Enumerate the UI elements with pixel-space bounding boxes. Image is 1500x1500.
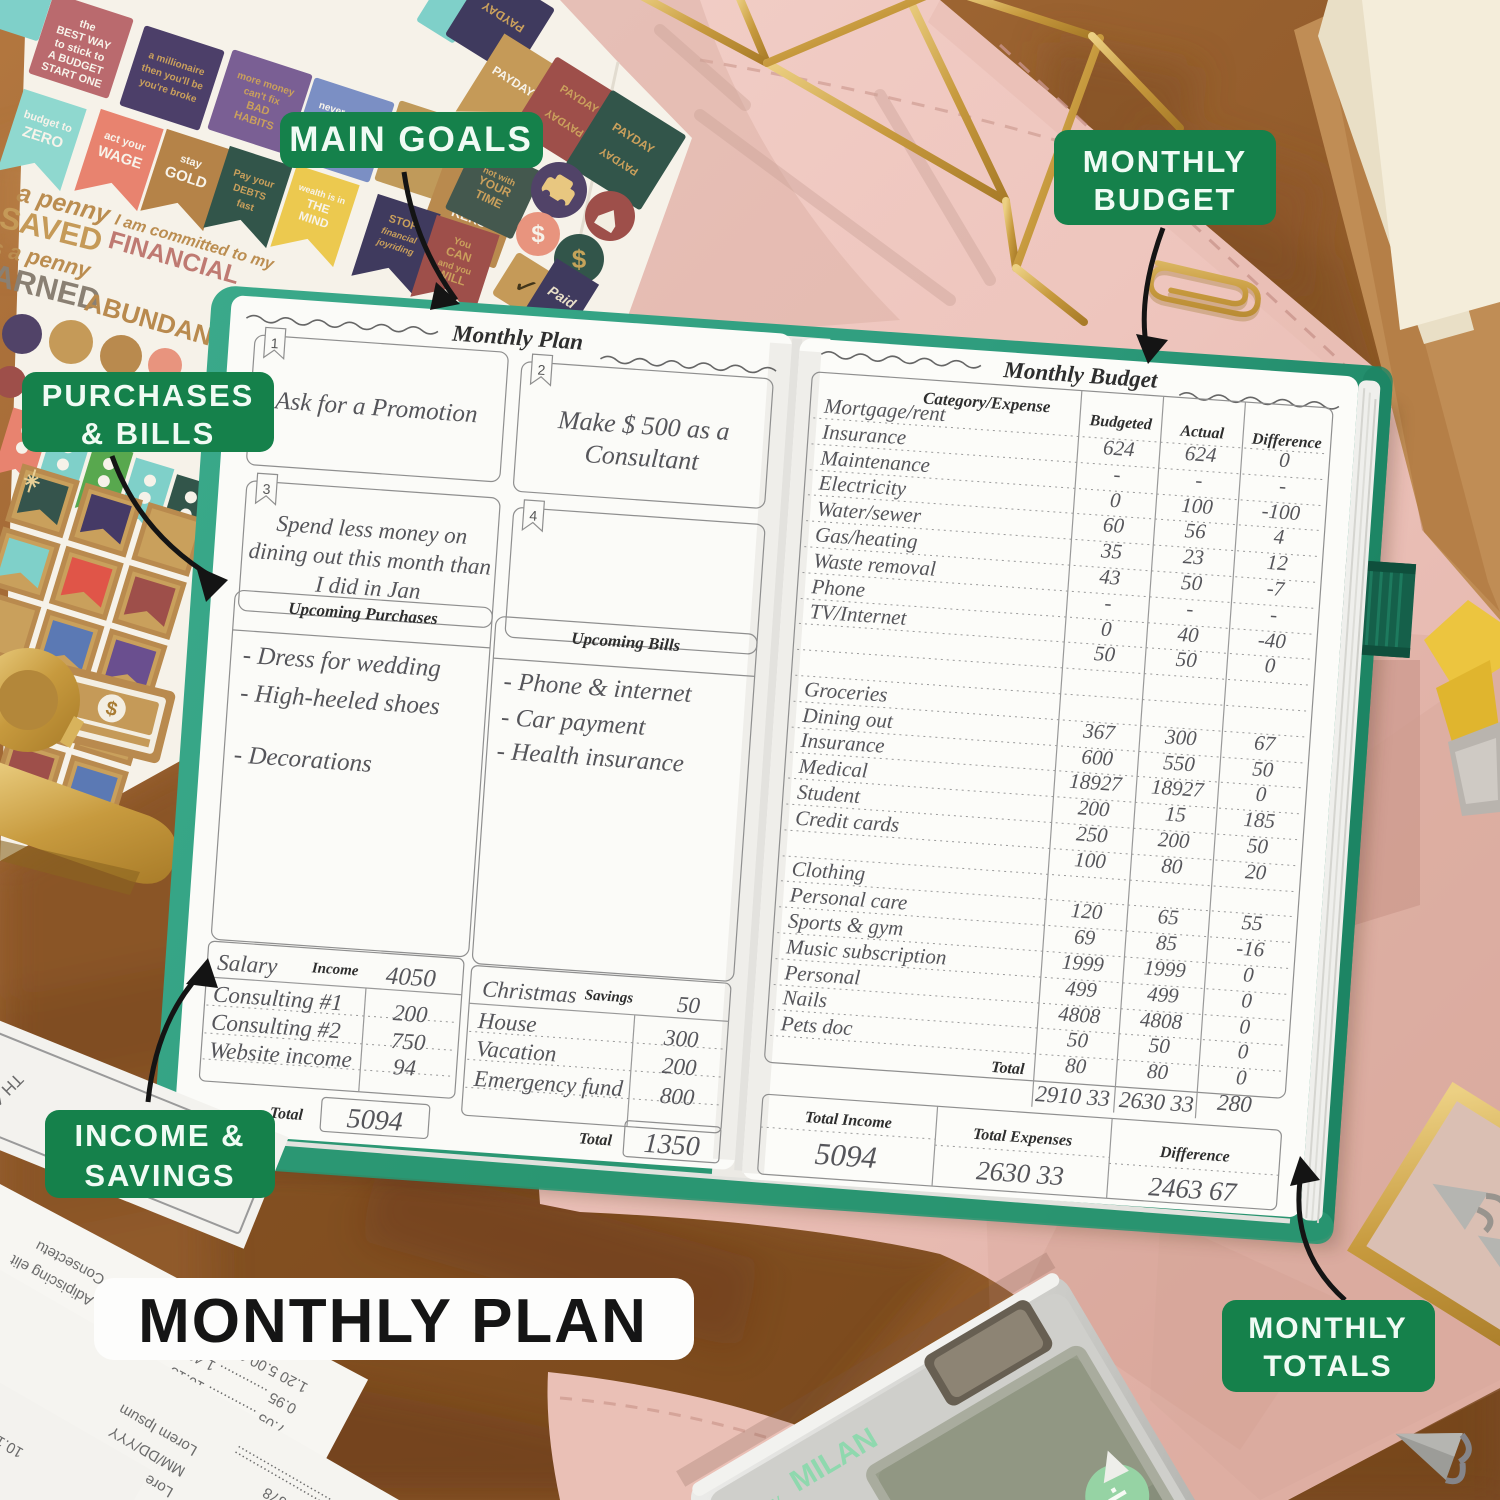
svg-text:499: 499 [1146, 982, 1180, 1008]
svg-text:Actual: Actual [1179, 423, 1225, 443]
svg-text:250: 250 [1075, 821, 1109, 847]
svg-text:$: $ [531, 221, 545, 248]
svg-text:624: 624 [1184, 441, 1218, 467]
svg-text:23: 23 [1182, 544, 1205, 569]
svg-text:56: 56 [1184, 518, 1207, 543]
svg-text:1999: 1999 [1143, 955, 1187, 982]
svg-text:-16: -16 [1236, 936, 1266, 962]
svg-text:750: 750 [390, 1028, 427, 1055]
svg-text:280: 280 [1216, 1090, 1253, 1117]
svg-text:1: 1 [270, 335, 279, 352]
svg-text:50: 50 [1175, 647, 1198, 672]
svg-text:624: 624 [1102, 435, 1136, 461]
svg-text:85: 85 [1155, 930, 1178, 955]
svg-text:50: 50 [1148, 1033, 1171, 1058]
svg-text:100: 100 [1074, 847, 1108, 873]
svg-text:800: 800 [659, 1083, 696, 1110]
svg-text:4808: 4808 [1058, 1001, 1102, 1028]
svg-text:MONTHLY: MONTHLY [1248, 1312, 1408, 1345]
svg-text:2: 2 [537, 362, 546, 379]
svg-text:House: House [476, 1008, 537, 1037]
svg-text:185: 185 [1243, 807, 1276, 833]
svg-text:5094: 5094 [346, 1103, 404, 1138]
svg-text:TOTALS: TOTALS [1263, 1350, 1392, 1383]
svg-text:3: 3 [262, 481, 271, 498]
svg-text:35: 35 [1099, 538, 1123, 563]
svg-text:MONTHLY: MONTHLY [1083, 144, 1247, 179]
svg-text:Salary: Salary [217, 950, 279, 979]
svg-text:55: 55 [1241, 910, 1264, 935]
svg-text:80: 80 [1161, 853, 1184, 878]
svg-text:50: 50 [1180, 570, 1203, 595]
svg-text:65: 65 [1157, 904, 1180, 929]
svg-text:50: 50 [1246, 833, 1269, 858]
svg-text:Medical: Medical [797, 754, 868, 783]
svg-text:Nails: Nails [781, 985, 828, 1012]
svg-text:1999: 1999 [1061, 950, 1105, 977]
svg-text:MAIN GOALS: MAIN GOALS [289, 120, 533, 159]
svg-text:2630 33: 2630 33 [1118, 1087, 1194, 1117]
svg-text:600: 600 [1081, 744, 1115, 770]
svg-text:Phone: Phone [810, 574, 866, 602]
svg-text:-100: -100 [1261, 498, 1302, 525]
svg-text:4808: 4808 [1139, 1007, 1183, 1034]
svg-text:1350: 1350 [643, 1128, 701, 1163]
svg-text:367: 367 [1082, 718, 1118, 744]
svg-text:94: 94 [392, 1054, 417, 1081]
svg-text:Clothing: Clothing [791, 857, 866, 886]
svg-text:200: 200 [1077, 795, 1111, 821]
svg-text:SAVINGS: SAVINGS [84, 1158, 235, 1193]
svg-text:Student: Student [796, 780, 862, 808]
svg-text:50: 50 [1093, 641, 1116, 666]
svg-text:2910 33: 2910 33 [1034, 1081, 1110, 1111]
svg-text:15: 15 [1164, 801, 1187, 826]
svg-text:INCOME &: INCOME & [75, 1118, 246, 1153]
svg-text:120: 120 [1070, 898, 1104, 924]
svg-text:67: 67 [1253, 730, 1277, 756]
svg-text:50: 50 [676, 992, 701, 1019]
svg-text:200: 200 [392, 1000, 429, 1027]
svg-text:69: 69 [1073, 924, 1096, 949]
svg-text:200: 200 [661, 1053, 698, 1080]
svg-text:Income: Income [310, 960, 359, 979]
svg-text:18927: 18927 [1150, 774, 1206, 802]
svg-text:18927: 18927 [1069, 769, 1125, 797]
svg-text:499: 499 [1065, 976, 1099, 1002]
svg-text:-7: -7 [1266, 576, 1287, 601]
svg-text:2630 33: 2630 33 [975, 1155, 1065, 1191]
svg-text:Total: Total [578, 1130, 613, 1149]
svg-text:200: 200 [1157, 827, 1191, 853]
svg-text:Savings: Savings [584, 987, 634, 1006]
svg-text:12: 12 [1266, 550, 1289, 575]
svg-text:50: 50 [1252, 756, 1275, 781]
svg-text:Total: Total [991, 1059, 1026, 1078]
svg-text:43: 43 [1099, 564, 1122, 589]
svg-text:100: 100 [1181, 493, 1215, 519]
svg-text:80: 80 [1146, 1059, 1169, 1084]
svg-text:& BILLS: & BILLS [81, 416, 216, 451]
svg-text:4050: 4050 [385, 962, 437, 992]
svg-text:550: 550 [1163, 750, 1197, 776]
svg-text:PURCHASES: PURCHASES [42, 378, 255, 413]
svg-text:-40: -40 [1257, 627, 1287, 653]
svg-text:50: 50 [1066, 1027, 1089, 1052]
svg-text:300: 300 [1163, 724, 1198, 750]
svg-text:40: 40 [1177, 622, 1200, 647]
svg-text:300: 300 [662, 1025, 700, 1052]
svg-text:4: 4 [529, 507, 538, 524]
svg-text:MONTHLY PLAN: MONTHLY PLAN [138, 1287, 648, 1356]
svg-text:20: 20 [1244, 859, 1267, 884]
svg-text:Pets doc: Pets doc [779, 1011, 854, 1040]
svg-text:2463 67: 2463 67 [1148, 1171, 1239, 1207]
svg-text:80: 80 [1064, 1053, 1087, 1078]
svg-text:BUDGET: BUDGET [1094, 182, 1237, 217]
svg-text:5094: 5094 [814, 1136, 878, 1175]
svg-text:60: 60 [1102, 512, 1125, 537]
